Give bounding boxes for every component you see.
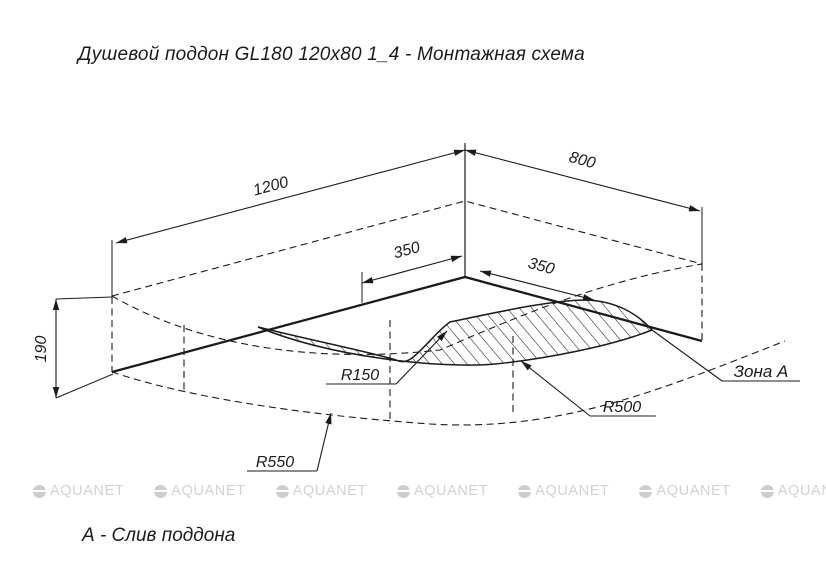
aquanet-logo-icon bbox=[761, 485, 774, 498]
watermark-item: AQUANET bbox=[276, 483, 367, 499]
aquanet-logo-icon bbox=[154, 485, 167, 498]
watermark-item: AQUANET bbox=[518, 483, 609, 499]
aquanet-logo-icon bbox=[639, 485, 652, 498]
drain-zone-a bbox=[258, 300, 652, 365]
watermark-item: AQUANET bbox=[33, 483, 124, 499]
watermark-text: AQUANET bbox=[656, 483, 730, 499]
label-r550: R550 bbox=[256, 454, 294, 471]
dim-label-190: 190 bbox=[33, 336, 50, 363]
watermark-text: AQUANET bbox=[414, 483, 488, 499]
height-extension-top bbox=[56, 297, 112, 299]
watermark-text: AQUANET bbox=[50, 483, 124, 499]
watermark-text: AQUANET bbox=[535, 483, 609, 499]
dim-label-350-left: 350 bbox=[392, 239, 422, 262]
dim-line-1200 bbox=[116, 150, 465, 243]
montage-scheme-page: Душевой поддон GL180 120x80 1_4 - Монтаж… bbox=[0, 0, 826, 576]
label-r500: R500 bbox=[603, 399, 641, 416]
aquanet-logo-icon bbox=[276, 485, 289, 498]
watermark-text: AQUANET bbox=[293, 483, 367, 499]
leader-r500 bbox=[521, 361, 590, 416]
radius-labels: R150 R500 R550 Зона A bbox=[256, 362, 789, 471]
watermark-item: AQUANET bbox=[761, 483, 826, 499]
height-extension-bottom bbox=[56, 374, 113, 398]
aquanet-logo-icon bbox=[518, 485, 531, 498]
dim-label-350-right: 350 bbox=[526, 255, 556, 278]
drain-footnote: А - Слив поддона bbox=[82, 525, 235, 547]
tray-top-outline-dashed bbox=[112, 201, 785, 425]
label-zone-a: Зона A bbox=[734, 362, 789, 381]
dim-line-350-left bbox=[362, 256, 462, 283]
watermark-text: AQUANET bbox=[171, 483, 245, 499]
watermark-row: AQUANET AQUANET AQUANET AQUANET AQUANET … bbox=[33, 483, 826, 499]
watermark-item: AQUANET bbox=[397, 483, 488, 499]
watermark-item: AQUANET bbox=[639, 483, 730, 499]
aquanet-logo-icon bbox=[33, 485, 46, 498]
leader-r550 bbox=[317, 413, 331, 471]
tray-solid-edges bbox=[56, 143, 702, 398]
watermark-item: AQUANET bbox=[154, 483, 245, 499]
dim-label-800: 800 bbox=[567, 149, 597, 172]
aquanet-logo-icon bbox=[397, 485, 410, 498]
watermark-text: AQUANET bbox=[778, 483, 826, 499]
label-r150: R150 bbox=[341, 367, 379, 384]
drain-zone-hatch bbox=[258, 300, 652, 365]
dim-label-1200: 1200 bbox=[251, 174, 290, 200]
